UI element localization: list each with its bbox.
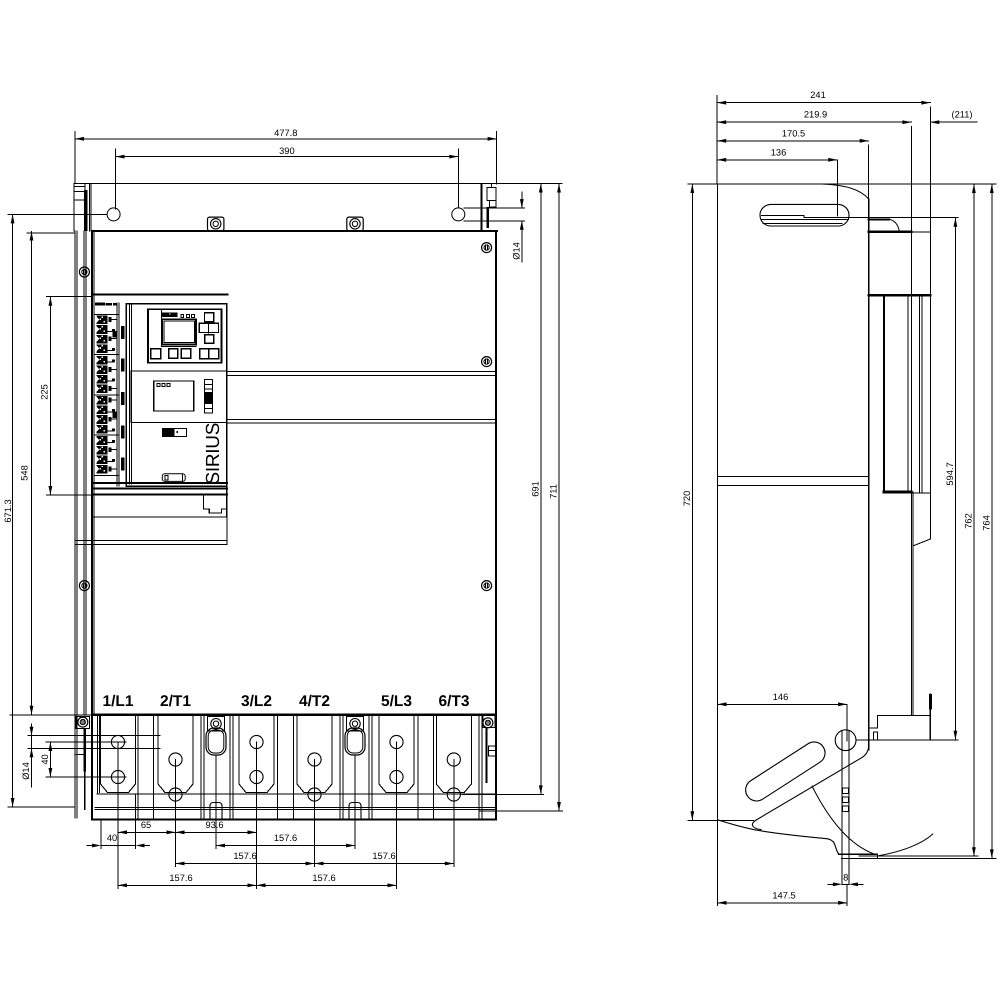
svg-text:2/T1: 2/T1: [160, 693, 191, 710]
svg-text:Ø14: Ø14: [511, 242, 521, 260]
svg-text:548: 548: [19, 465, 29, 481]
svg-text:157.6: 157.6: [233, 851, 256, 861]
svg-text:762: 762: [964, 513, 974, 529]
svg-text:711: 711: [549, 484, 559, 499]
svg-text:764: 764: [982, 515, 992, 531]
svg-text:SIRIUS: SIRIUS: [203, 423, 224, 485]
svg-text:390: 390: [279, 146, 295, 156]
svg-text:146: 146: [773, 692, 789, 702]
svg-text:241: 241: [810, 90, 826, 100]
svg-text:40: 40: [40, 754, 50, 764]
svg-text:65: 65: [141, 820, 151, 830]
svg-text:136: 136: [771, 147, 787, 157]
svg-text:(211): (211): [951, 110, 972, 120]
svg-text:225: 225: [39, 384, 49, 400]
svg-text:4/T2: 4/T2: [299, 693, 330, 710]
svg-text:170.5: 170.5: [782, 128, 805, 138]
svg-text:691: 691: [530, 481, 540, 497]
svg-text:40: 40: [107, 833, 117, 843]
svg-text:157.6: 157.6: [372, 851, 395, 861]
svg-text:147.5: 147.5: [772, 890, 795, 900]
svg-text:1/L1: 1/L1: [102, 693, 133, 710]
svg-text:219.9: 219.9: [804, 110, 827, 120]
svg-text:6/T3: 6/T3: [438, 693, 469, 710]
svg-text:8: 8: [843, 872, 848, 882]
svg-text:157.6: 157.6: [274, 833, 297, 843]
svg-text:157.6: 157.6: [169, 873, 192, 883]
svg-text:477.8: 477.8: [274, 128, 297, 138]
svg-text:5/L3: 5/L3: [381, 693, 412, 710]
svg-text:3/L2: 3/L2: [241, 693, 272, 710]
svg-text:671.3: 671.3: [3, 499, 13, 522]
svg-text:720: 720: [682, 491, 692, 507]
svg-text:Ø14: Ø14: [21, 762, 31, 780]
svg-text:594.7: 594.7: [945, 462, 955, 485]
svg-text:157.6: 157.6: [312, 873, 335, 883]
svg-text:93.6: 93.6: [205, 820, 223, 830]
